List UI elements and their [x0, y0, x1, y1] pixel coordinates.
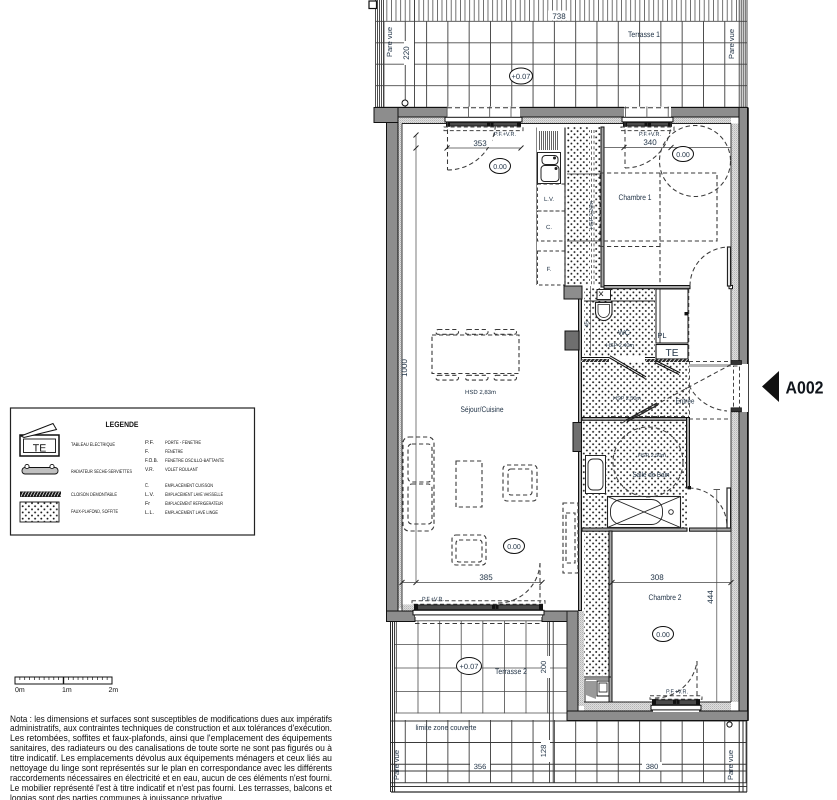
- svg-text:P.F.+V.R.: P.F.+V.R.: [666, 689, 688, 696]
- svg-text:L.V.: L.V.: [145, 492, 154, 498]
- svg-text:HSP 2.50m: HSP 2.50m: [638, 453, 666, 459]
- svg-text:738: 738: [552, 12, 566, 21]
- svg-text:C.: C.: [145, 483, 149, 489]
- svg-text:TE: TE: [666, 348, 679, 359]
- svg-text:+0.07: +0.07: [512, 72, 531, 81]
- svg-text:Chambre 2: Chambre 2: [649, 593, 682, 602]
- svg-text:A002: A002: [786, 378, 824, 398]
- svg-text:1m: 1m: [62, 687, 72, 694]
- svg-text:340: 340: [643, 138, 657, 147]
- svg-text:+0.07: +0.07: [460, 662, 479, 671]
- svg-text:444: 444: [706, 590, 715, 604]
- svg-text:P.F.+V.R.: P.F.+V.R.: [639, 131, 661, 138]
- svg-text:FENETRE: FENETRE: [165, 449, 184, 455]
- svg-text:Chambre 1: Chambre 1: [619, 193, 652, 202]
- svg-text:385: 385: [479, 573, 493, 582]
- svg-text:308: 308: [650, 573, 664, 582]
- svg-text:356: 356: [474, 762, 487, 771]
- svg-text:Séjour/Cuisine: Séjour/Cuisine: [461, 405, 504, 414]
- svg-text:Pare vue: Pare vue: [727, 29, 736, 59]
- svg-text:F.: F.: [145, 449, 149, 455]
- svg-text:EMPLACEMENT LAVE LINGE: EMPLACEMENT LAVE LINGE: [165, 510, 219, 516]
- svg-text:45: 45: [585, 321, 591, 327]
- svg-text:TABLEAU ELECTRIQUE: TABLEAU ELECTRIQUE: [71, 442, 116, 448]
- svg-text:HSD 2,83m: HSD 2,83m: [465, 389, 496, 396]
- svg-text:FENETRE OSCILLO-BATTANTE: FENETRE OSCILLO-BATTANTE: [165, 458, 225, 464]
- svg-text:Pare vue: Pare vue: [392, 750, 401, 780]
- svg-text:Fr: Fr: [145, 501, 150, 507]
- svg-text:P.F.+V.R.: P.F.+V.R.: [494, 131, 516, 138]
- svg-text:V.R.: V.R.: [145, 467, 154, 473]
- svg-text:Terrasse 1: Terrasse 1: [628, 30, 660, 39]
- svg-text:HSP 2.20m: HSP 2.20m: [589, 201, 595, 229]
- svg-text:HSP 2.40m: HSP 2.40m: [606, 343, 634, 349]
- svg-text:0.00: 0.00: [656, 632, 670, 639]
- svg-text:2m: 2m: [109, 687, 119, 694]
- svg-text:LEGENDE: LEGENDE: [106, 420, 139, 429]
- svg-text:L.L.: L.L.: [145, 510, 154, 516]
- svg-text:0.00: 0.00: [676, 152, 690, 159]
- svg-text:RADIATEUR SECHE-SERVIETTES: RADIATEUR SECHE-SERVIETTES: [71, 469, 132, 475]
- svg-text:0m: 0m: [15, 687, 25, 694]
- svg-text:TE: TE: [33, 443, 46, 455]
- svg-text:220: 220: [402, 46, 411, 60]
- svg-text:F.: F.: [547, 266, 552, 273]
- svg-text:200: 200: [539, 661, 548, 674]
- svg-text:VOLET ROULANT: VOLET ROULANT: [165, 467, 198, 473]
- svg-text:EMPLACEMENT REFRIGERATEUR: EMPLACEMENT REFRIGERATEUR: [165, 501, 223, 507]
- svg-text:limite zone couverte: limite zone couverte: [416, 723, 477, 732]
- svg-text:CLOISON DEMONTABLE: CLOISON DEMONTABLE: [71, 492, 118, 498]
- svg-text:Pare vue: Pare vue: [726, 750, 735, 780]
- svg-text:L.V.: L.V.: [544, 196, 554, 203]
- svg-text:Pare vue: Pare vue: [385, 27, 394, 57]
- svg-text:EMPLACEMENT LAVE VAISSELLE: EMPLACEMENT LAVE VAISSELLE: [165, 492, 223, 498]
- svg-text:Entrée: Entrée: [676, 397, 695, 406]
- svg-text:C.: C.: [546, 224, 552, 231]
- svg-text:353: 353: [473, 139, 487, 148]
- svg-text:P.F.: P.F.: [145, 440, 154, 446]
- svg-text:Salle de Bain: Salle de Bain: [633, 470, 670, 479]
- svg-text:P.F.+V.R.: P.F.+V.R.: [422, 596, 444, 603]
- svg-text:380: 380: [646, 762, 659, 771]
- svg-text:EMPLACEMENT CUISSON: EMPLACEMENT CUISSON: [165, 483, 213, 489]
- svg-text:Terrasse 2: Terrasse 2: [495, 667, 527, 676]
- svg-text:0.00: 0.00: [507, 544, 521, 551]
- svg-text:F.O.B.: F.O.B.: [145, 458, 158, 464]
- svg-text:WC: WC: [618, 328, 631, 337]
- svg-text:PORTE - FENETRE: PORTE - FENETRE: [165, 440, 202, 446]
- svg-text:PL: PL: [657, 331, 666, 340]
- svg-text:0.00: 0.00: [493, 164, 507, 171]
- svg-text:1000: 1000: [400, 359, 409, 377]
- svg-text:FAUX-PLAFOND, SOFFITE: FAUX-PLAFOND, SOFFITE: [71, 509, 118, 515]
- svg-text:HSP 2.50m: HSP 2.50m: [613, 396, 641, 402]
- svg-text:128: 128: [539, 745, 548, 758]
